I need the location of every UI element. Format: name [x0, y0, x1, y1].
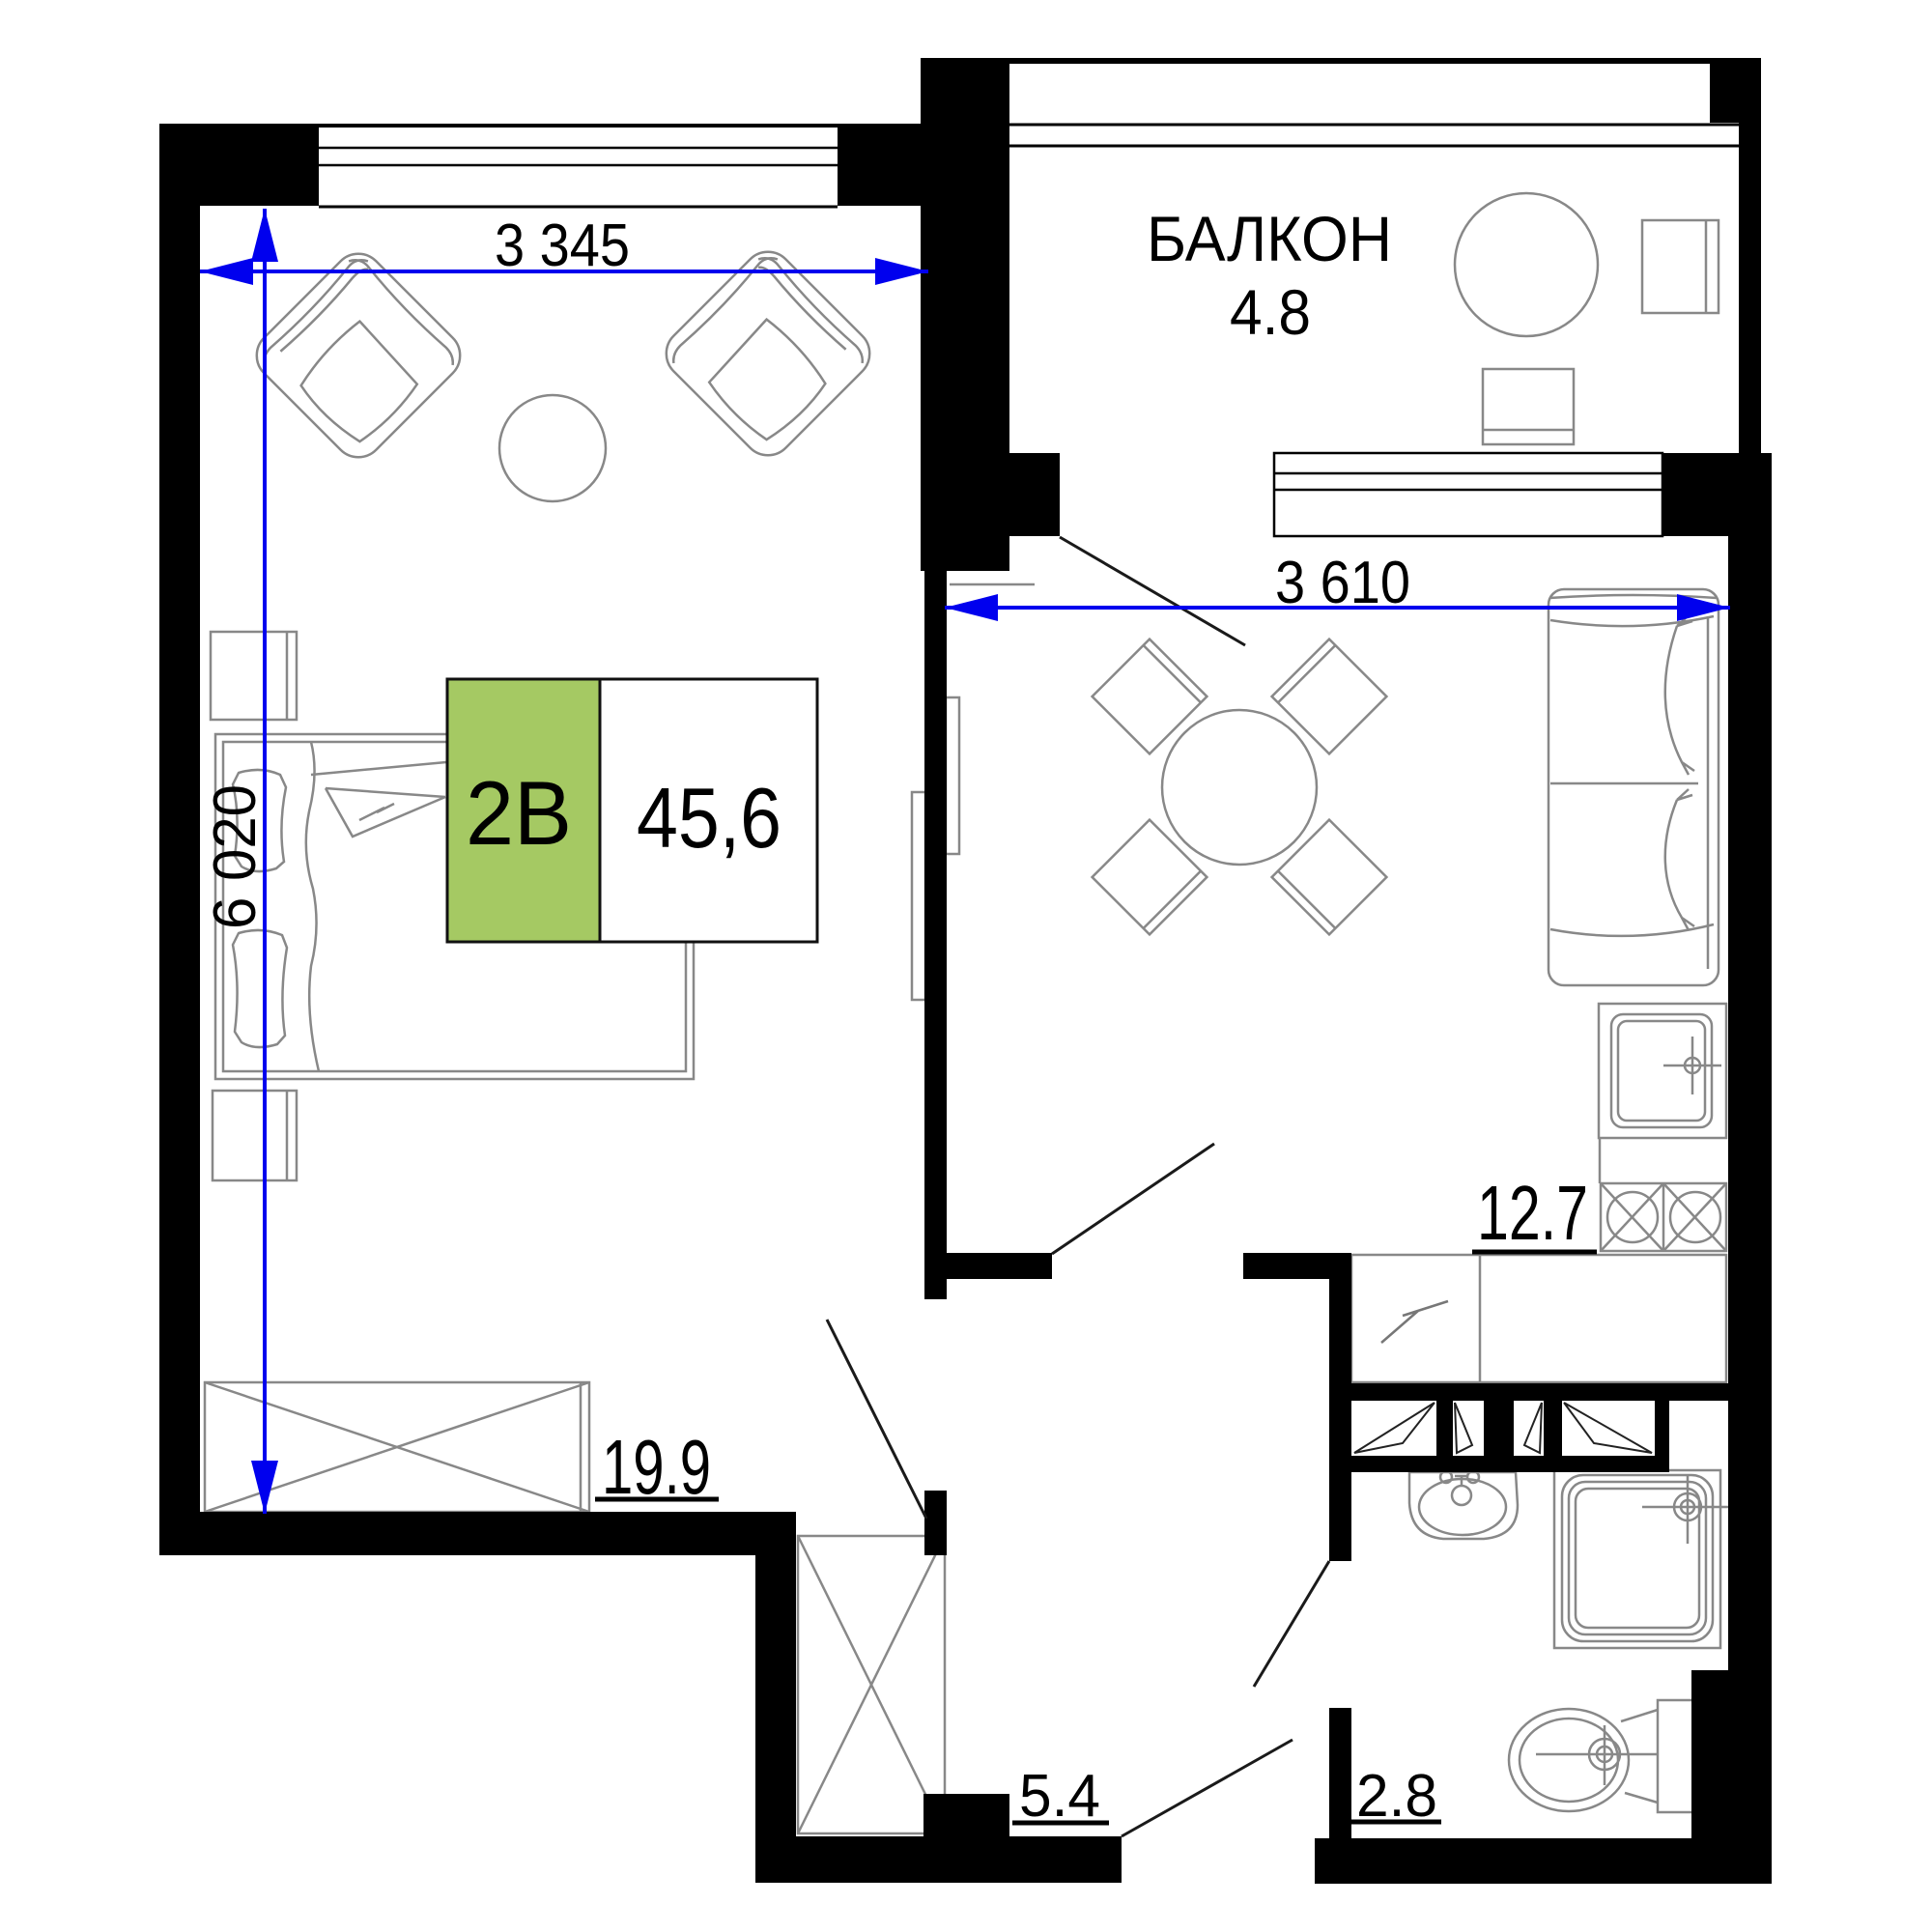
svg-text:4.8: 4.8 — [1230, 276, 1311, 348]
svg-text:БАЛКОН: БАЛКОН — [1147, 203, 1392, 274]
svg-text:12.7: 12.7 — [1477, 1170, 1588, 1256]
svg-text:6 020: 6 020 — [202, 784, 269, 929]
svg-text:45,6: 45,6 — [637, 770, 781, 866]
svg-text:3 345: 3 345 — [495, 213, 630, 279]
svg-text:3 610: 3 610 — [1275, 550, 1410, 616]
svg-text:5.4: 5.4 — [1019, 1763, 1100, 1830]
svg-text:2B: 2B — [466, 762, 572, 864]
